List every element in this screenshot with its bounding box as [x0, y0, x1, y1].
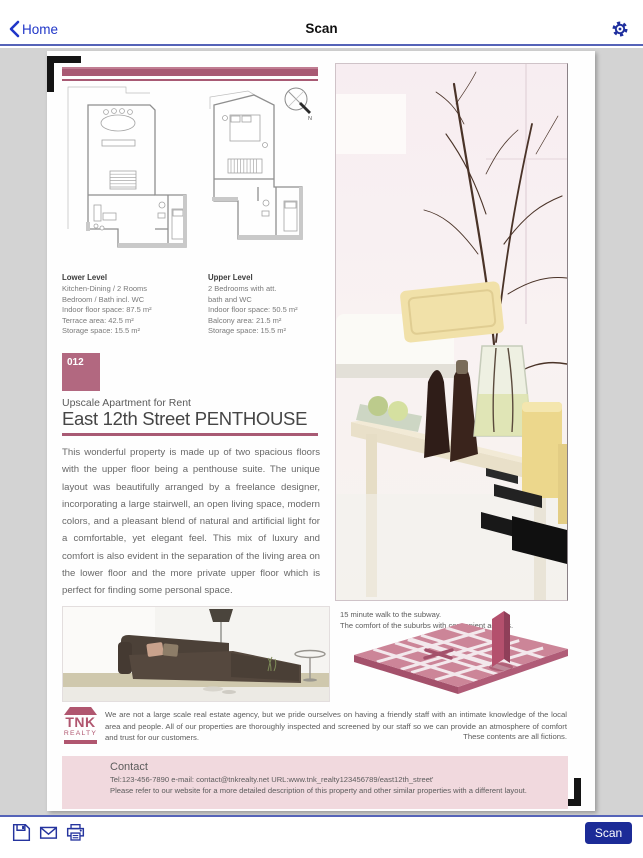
bottom-toolbar: Scan: [0, 815, 643, 858]
header-bar-graphic: [62, 67, 318, 81]
save-button[interactable]: [12, 823, 31, 842]
agency-disclaimer: These contents are all fictions.: [105, 732, 567, 741]
scan-button[interactable]: Scan: [585, 822, 632, 844]
contact-box: Contact Tel:123-456-7890 e-mail: contact…: [62, 756, 568, 809]
spec-line: Balcony area: 21.5 m²: [208, 316, 340, 326]
gear-icon: [610, 19, 630, 39]
settings-button[interactable]: [610, 19, 630, 39]
lower-level-heading: Lower Level: [62, 273, 202, 283]
property-photo-art: [336, 64, 567, 600]
listing-number-badge: 012: [62, 353, 100, 391]
spec-line: Kitchen-Dining / 2 Rooms: [62, 284, 202, 294]
navbar: Home Scan: [0, 0, 643, 46]
livingroom-photo-art: [63, 607, 329, 701]
print-button[interactable]: [66, 823, 85, 842]
livingroom-photo: [62, 606, 330, 702]
upper-level-heading: Upper Level: [208, 273, 340, 283]
lower-level-floorplan: [68, 87, 187, 248]
listing-title: East 12th Street PENTHOUSE: [62, 408, 307, 430]
contact-heading: Contact: [110, 761, 148, 773]
spec-line: bath and WC: [208, 295, 340, 305]
print-icon: [66, 823, 85, 842]
spec-line: Storage space: 15.5 m²: [62, 326, 202, 336]
spec-line: Storage space: 15.5 m²: [208, 326, 340, 336]
email-button[interactable]: [39, 823, 58, 842]
agency-logo-name: TNK: [62, 715, 99, 730]
title-rule: [62, 433, 318, 436]
spec-line: 2 Bedrooms with att.: [208, 284, 340, 294]
spec-line: Terrace area: 42.5 m²: [62, 316, 202, 326]
property-photo: [335, 63, 568, 601]
scan-app-window: Home Scan: [0, 0, 643, 858]
north-compass-icon: N: [285, 88, 312, 122]
agency-logo-roof-shape: [64, 707, 97, 715]
contact-line2: Please refer to our website for a more d…: [110, 786, 527, 795]
upper-level-specs: Upper Level 2 Bedrooms with att. bath an…: [208, 273, 340, 336]
page-title: Scan: [0, 21, 643, 36]
scan-preview-stage: N Lower Level Kitchen-Dining / 2 Rooms B…: [0, 48, 643, 815]
listing-description: This wonderful property is made up of tw…: [62, 444, 320, 600]
contact-line1: Tel:123-456-7890 e-mail: contact@tnkreal…: [110, 775, 434, 784]
agency-logo-bar: [64, 740, 97, 744]
floorplan-drawings: N: [62, 83, 318, 271]
save-icon: [12, 823, 31, 842]
spec-line: Bedroom / Bath incl. WC: [62, 295, 202, 305]
scanned-document-page: N Lower Level Kitchen-Dining / 2 Rooms B…: [47, 51, 595, 811]
subway-map-graphic: [346, 605, 574, 711]
svg-text:N: N: [308, 116, 312, 122]
spec-line: Indoor floor space: 50.5 m²: [208, 305, 340, 315]
agency-logo-subname: REALTY: [62, 730, 99, 738]
lower-level-specs: Lower Level Kitchen-Dining / 2 Rooms Bed…: [62, 273, 202, 336]
spec-line: Indoor floor space: 87.5 m²: [62, 305, 202, 315]
email-icon: [39, 823, 58, 842]
agency-logo: TNK REALTY: [62, 707, 99, 744]
upper-level-floorplan: [210, 91, 303, 240]
